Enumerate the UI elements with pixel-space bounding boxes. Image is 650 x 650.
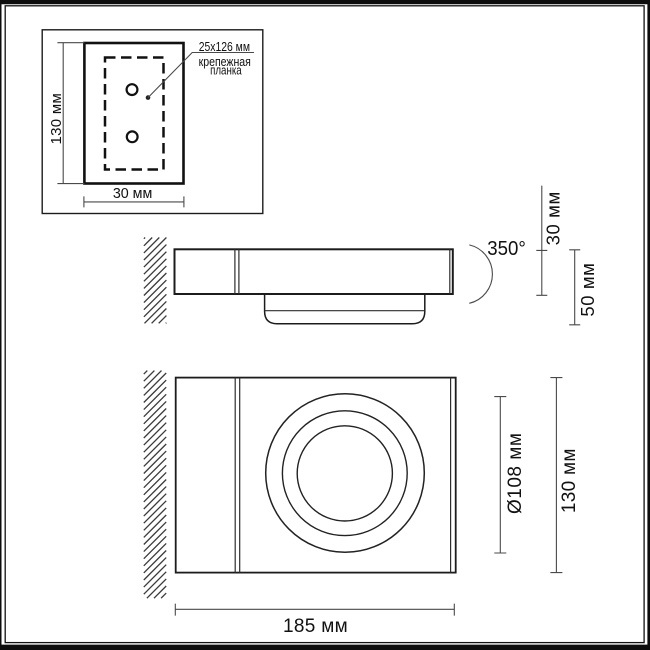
svg-text:185 мм: 185 мм: [283, 616, 348, 637]
svg-text:30 мм: 30 мм: [113, 186, 153, 202]
svg-text:130 мм: 130 мм: [559, 448, 580, 513]
svg-text:50 мм: 50 мм: [577, 263, 598, 317]
svg-text:130 мм: 130 мм: [48, 93, 65, 145]
svg-text:30 мм: 30 мм: [542, 191, 563, 245]
svg-text:планка: планка: [210, 63, 242, 78]
svg-text:25x126 мм: 25x126 мм: [199, 40, 250, 54]
svg-text:Ø108 мм: Ø108 мм: [505, 433, 526, 514]
svg-text:350°: 350°: [487, 237, 526, 260]
